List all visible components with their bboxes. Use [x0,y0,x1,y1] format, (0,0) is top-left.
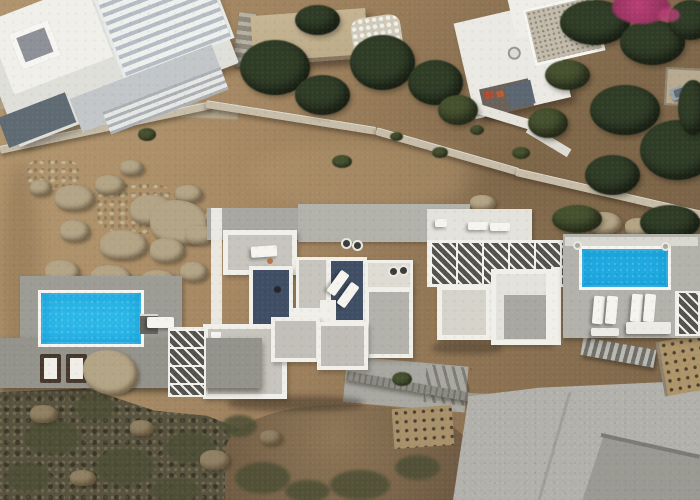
left-swimming-pool [38,290,144,347]
scrub-bush [25,420,80,455]
sun-lounger-towel [40,354,61,383]
right-pool-area [563,234,700,338]
boulder [60,220,90,242]
villa-roof [271,317,320,362]
deck-table [591,328,619,336]
tree [295,75,350,115]
villa-roof [437,285,491,340]
tree [295,5,340,35]
aerial-photo-scene [0,0,700,500]
scrub-bush [95,448,155,486]
tree [585,155,640,195]
shrub [138,128,156,141]
boulder [260,430,282,445]
scrub-bush [235,462,290,494]
shrub [470,125,484,135]
boulder [30,405,58,423]
planted-bed [392,405,455,449]
tree [545,60,590,90]
towel [44,358,57,379]
right-swimming-pool [579,246,671,290]
tree [350,35,415,90]
deck-table [435,219,447,227]
right-villa [425,205,575,345]
scrub-bush [5,462,50,492]
boulder [95,175,125,195]
scrub-bush [395,455,440,480]
chimney-pot [398,265,409,276]
lattice-pergola [168,327,206,397]
scrub-bush [330,470,390,500]
scrub-bush [222,415,257,437]
scrub-bush [285,480,330,500]
chimney-pot [341,238,352,249]
scrub-bush [150,478,200,500]
towel [70,358,83,379]
boulder [200,450,230,470]
boulder [100,230,148,260]
deck-pad [573,241,582,250]
stairway [580,337,656,368]
deck-lounger [490,223,510,231]
villa-east-wall [551,267,561,345]
tree [438,95,478,125]
lattice-panel [675,291,700,336]
shrub [390,132,403,141]
pool-white-band [565,237,698,246]
boulder [55,185,95,211]
inner-roof-block [504,295,546,339]
deck-pad [661,242,670,251]
roof-lounger [251,245,278,258]
boulder [150,238,185,263]
boulder [130,420,154,436]
deck-table [626,322,671,334]
tree [678,80,700,135]
deck-lounger [468,222,488,230]
villa-roof [365,288,413,358]
tree [528,108,568,138]
roof-object [267,258,273,264]
villa-roof [317,322,368,370]
shrub [512,147,530,159]
roof-drain [274,286,281,293]
shrub [332,155,352,168]
shrub [432,147,448,158]
boulder [70,470,96,486]
chimney-pot [352,240,363,251]
bougainvillea [658,8,680,22]
tree [590,85,660,135]
